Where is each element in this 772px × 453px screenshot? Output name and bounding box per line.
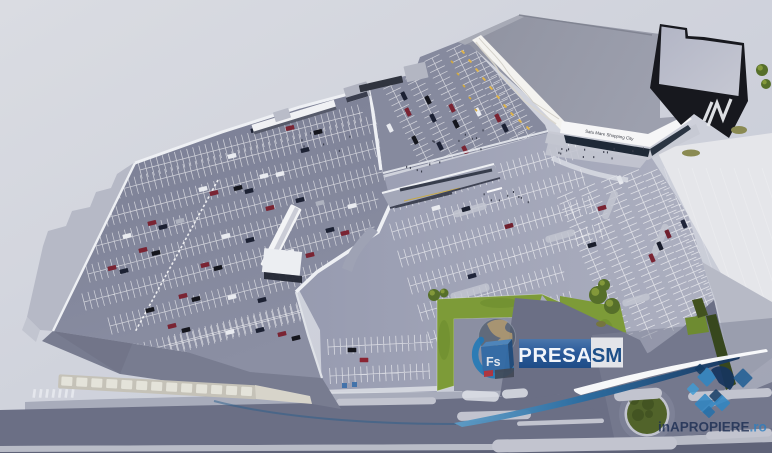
svg-text:SM: SM [592,344,623,367]
svg-text:Fs: Fs [486,355,501,369]
svg-text:PRESA: PRESA [518,344,592,367]
svg-text:inAPROPIERE.ro: inAPROPIERE.ro [658,420,767,435]
